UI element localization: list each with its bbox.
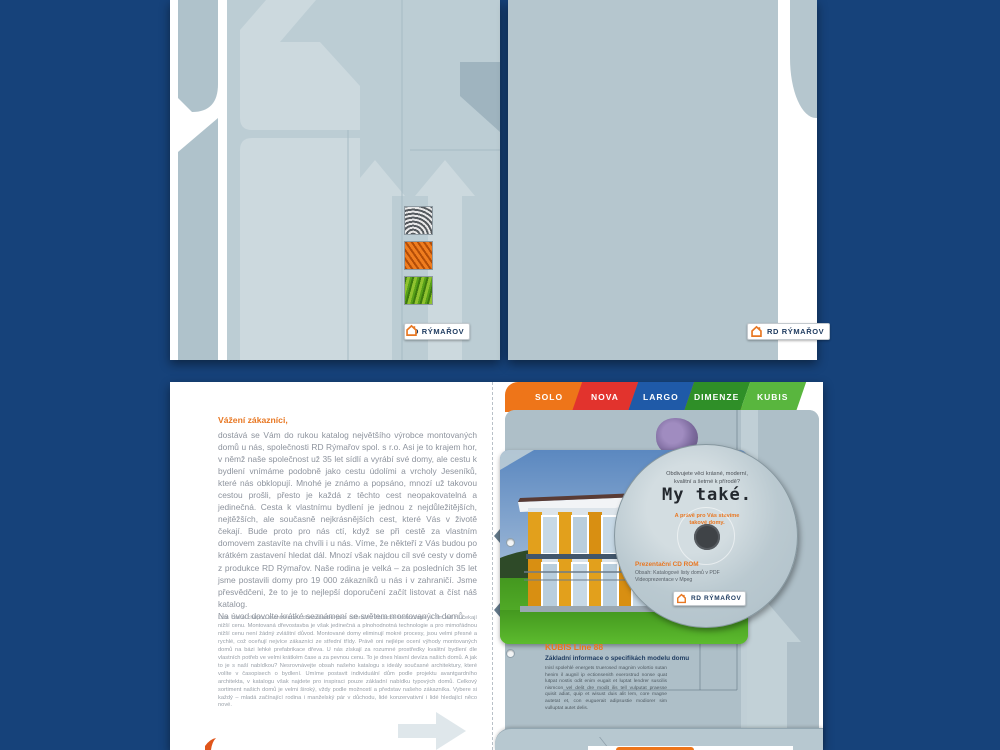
model-description: Inisl spolehlé energets truerosed magnim… — [545, 666, 667, 712]
house-icon — [405, 324, 418, 337]
pocket-insert-card — [588, 746, 793, 750]
tab-kubis: KUBIS — [740, 382, 806, 412]
tab-largo-label: LARGO — [643, 392, 679, 402]
house-icon — [676, 593, 687, 604]
greeting-paragraph: dostává se Vám do rukou katalog největší… — [218, 429, 477, 622]
punch-hole — [506, 538, 515, 547]
cd-contents: Obsah: Katalogové listy domů v PDF Video… — [635, 570, 755, 584]
fingerprint-texture-photo — [404, 206, 433, 235]
cd-contents-line2: Videoprezentace v Mpeg — [635, 577, 755, 584]
logo-label: RD RÝMAŘOV — [767, 327, 824, 336]
grass-texture-photo — [404, 276, 433, 305]
cd-title: My také. — [615, 485, 799, 505]
spread-left-page: Vážení zákazníci, dostává se Vám do ruko… — [170, 382, 497, 750]
intro-paragraph: Lidé často chápou montovanou dřevostavbu… — [218, 615, 477, 710]
tab-kubis-label: KUBIS — [757, 392, 788, 402]
punch-hole — [506, 649, 515, 658]
cd-question: Obdivujete věci krásné, moderní, kvalitn… — [615, 471, 799, 486]
cd-question-line1: Obdivujete věci krásné, moderní, — [615, 471, 799, 479]
cover-front-art — [170, 0, 500, 360]
tab-dimenze-label: DIMENZE — [694, 392, 739, 402]
presentation-cd: Obdivujete věci krásné, moderní, kvalitn… — [614, 444, 798, 628]
cd-center-hole — [694, 524, 720, 550]
right-arrow-watermark-icon — [398, 712, 466, 750]
wood-texture-photo — [404, 241, 433, 270]
folder-cover-back: RD RÝMAŘOV — [508, 0, 817, 360]
artwork-canvas: RD RÝMAŘOV RD RÝMAŘOV Vážení zákazníci, … — [0, 0, 1000, 750]
model-subtitle: Základní informace o specifikách modelu … — [545, 655, 689, 662]
cover-back-face — [508, 0, 778, 360]
greeting-heading: Vážení zákazníci, — [218, 415, 288, 425]
tab-solo-label: SOLO — [535, 392, 563, 402]
rd-rymarov-logo: RD RÝMAŘOV — [404, 323, 470, 340]
cd-product-label: Prezentační CD ROM — [635, 561, 699, 568]
house-icon — [750, 325, 763, 338]
model-name: KUBIS Line 88 — [545, 642, 603, 652]
logo-label: RD RÝMAŘOV — [691, 595, 741, 602]
open-folder-spread: Vážení zákazníci, dostává se Vám do ruko… — [170, 382, 823, 750]
orange-swoosh-icon — [204, 737, 224, 750]
folder-cover-front: RD RÝMAŘOV — [170, 0, 500, 360]
rd-rymarov-logo: RD RÝMAŘOV — [747, 323, 830, 340]
tab-row: SOLO NOVA LARGO DIMENZE KUBIS — [521, 382, 801, 412]
cover-back-flap — [790, 0, 817, 118]
folder-pocket — [495, 728, 823, 750]
rd-rymarov-logo: RD RÝMAŘOV — [673, 591, 746, 606]
tab-nova-label: NOVA — [591, 392, 619, 402]
cd-contents-line1: Obsah: Katalogové listy domů v PDF — [635, 570, 755, 577]
